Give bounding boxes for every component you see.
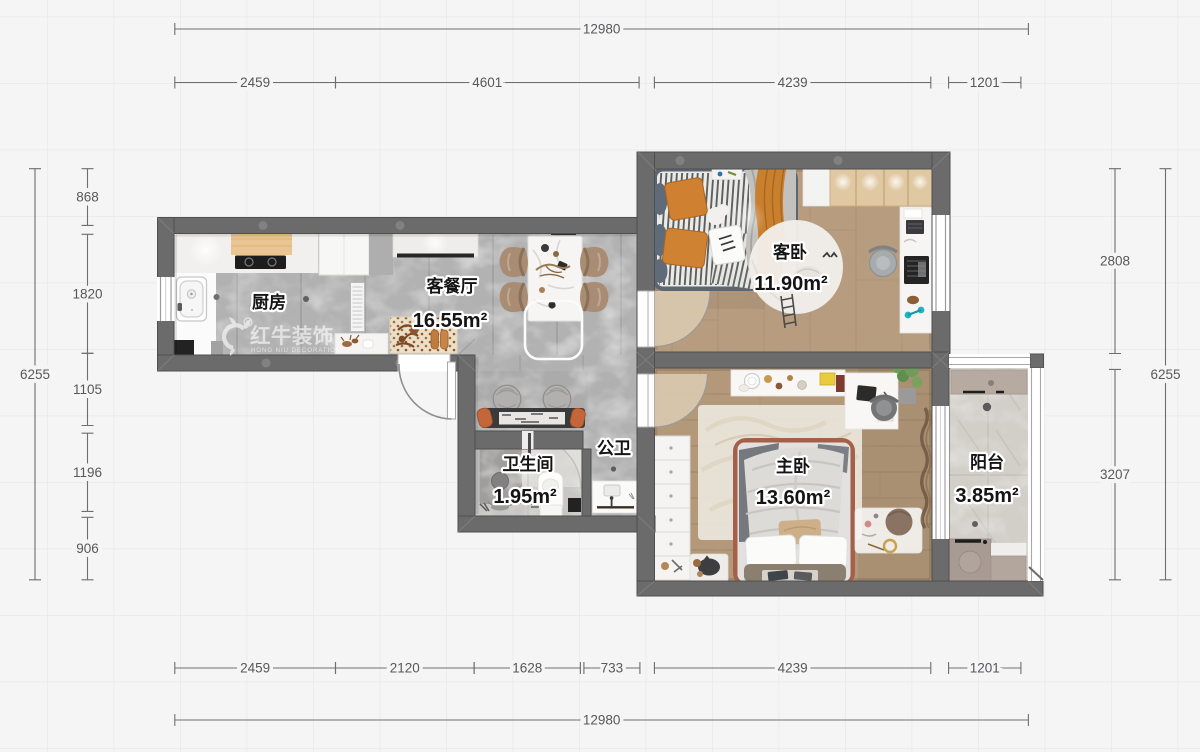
svg-text:2459: 2459 [240,75,270,90]
svg-text:1201: 1201 [970,661,1000,676]
svg-text:1196: 1196 [73,465,102,480]
svg-text:4239: 4239 [778,75,808,90]
svg-text:4601: 4601 [472,75,502,90]
svg-text:16.55m²: 16.55m² [413,310,488,332]
svg-text:3.85m²: 3.85m² [955,485,1019,507]
svg-text:HONG NIU DECORATION: HONG NIU DECORATION [251,348,341,354]
svg-text:4239: 4239 [778,661,808,676]
svg-text:客餐厅: 客餐厅 [426,276,478,296]
svg-text:厨房: 厨房 [252,292,286,312]
svg-text:红牛装饰: 红牛装饰 [250,324,334,348]
svg-text:客卧: 客卧 [772,242,807,262]
svg-text:公卫: 公卫 [597,439,631,458]
svg-text:卫生间: 卫生间 [503,454,554,474]
svg-text:1.95m²: 1.95m² [493,486,557,508]
svg-text:2120: 2120 [390,661,420,676]
svg-text:2808: 2808 [1100,254,1130,269]
svg-text:868: 868 [76,190,99,205]
svg-text:3207: 3207 [1100,467,1130,482]
svg-text:906: 906 [76,541,99,556]
svg-text:1105: 1105 [73,382,102,397]
svg-text:12980: 12980 [583,22,621,37]
svg-text:主卧: 主卧 [776,456,810,476]
svg-text:2459: 2459 [240,661,270,676]
svg-text:13.60m²: 13.60m² [756,487,831,509]
svg-text:1628: 1628 [512,661,542,676]
svg-text:6255: 6255 [1150,367,1180,382]
svg-text:1201: 1201 [970,75,1000,90]
svg-text:1820: 1820 [72,286,102,301]
svg-text:阳台: 阳台 [970,452,1004,472]
svg-text:11.90m²: 11.90m² [754,273,828,295]
svg-text:733: 733 [601,661,624,676]
svg-text:12980: 12980 [583,713,621,728]
svg-text:6255: 6255 [20,367,50,382]
